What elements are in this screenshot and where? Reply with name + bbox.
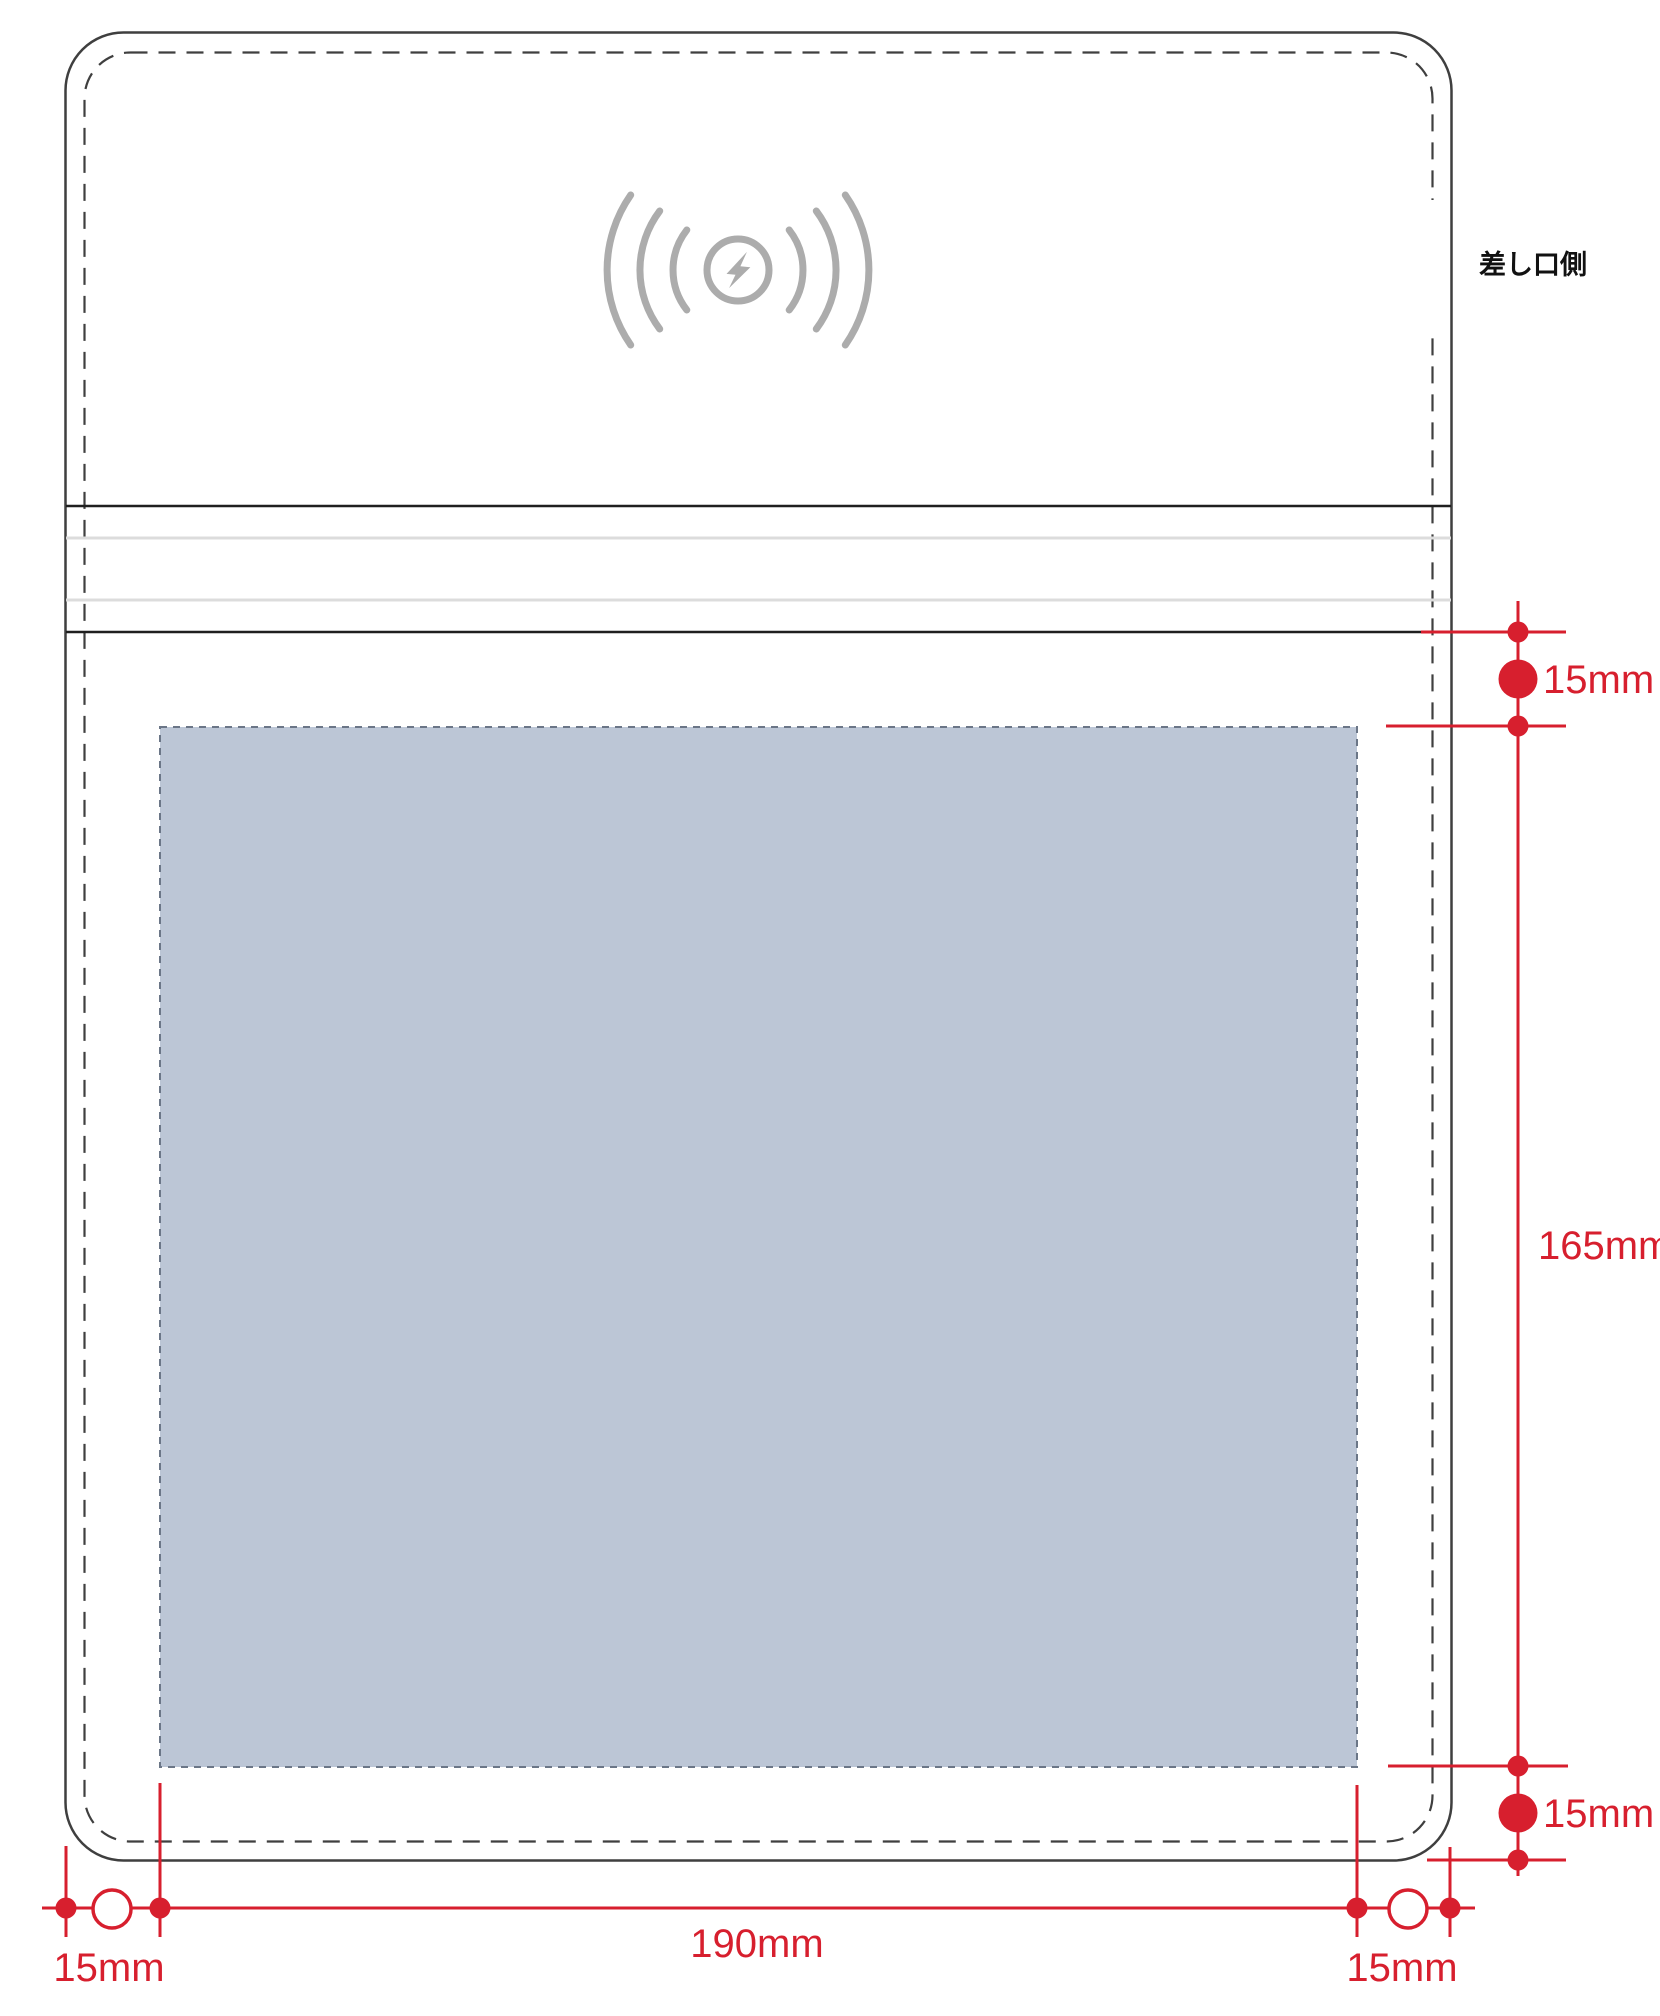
dim-big-dot-bottom-gap: [1499, 1794, 1538, 1833]
dim-ring-right: [1389, 1890, 1427, 1928]
dim-ring-left: [93, 1890, 131, 1928]
dim-dot: [1508, 622, 1529, 643]
dim-label-left-margin: 15mm: [53, 1948, 164, 1988]
insertion-side-label: 差し口側: [1479, 252, 1587, 279]
dim-label-print-width: 190mm: [690, 1924, 823, 1964]
dim-dot: [56, 1898, 77, 1919]
wireless-charging-icon: [607, 195, 869, 345]
dim-dot: [1440, 1898, 1461, 1919]
dim-dot: [1508, 716, 1529, 737]
left-wave-middle: [640, 211, 660, 329]
right-wave-outer: [845, 195, 869, 345]
dim-label-right-margin: 15mm: [1346, 1948, 1457, 1988]
print-area: [160, 727, 1357, 1767]
diagram-artwork: [0, 0, 1660, 2016]
lightning-bolt-icon: [725, 250, 752, 290]
band-seam: [66, 506, 1451, 632]
right-wave-inner: [789, 230, 803, 310]
dim-dot: [150, 1898, 171, 1919]
dim-big-dot-top-gap: [1499, 660, 1538, 699]
dim-dot: [1508, 1756, 1529, 1777]
left-wave-outer: [607, 195, 631, 345]
dim-label-bottom-gap: 15mm: [1543, 1794, 1654, 1834]
dim-label-print-height: 165mm: [1538, 1226, 1660, 1266]
dim-label-top-gap: 15mm: [1543, 660, 1654, 700]
pouch-dimension-diagram: 差し口側 15mm 165mm 15mm 15mm 190mm 15mm: [0, 0, 1660, 2016]
dim-dot: [1508, 1850, 1529, 1871]
left-wave-inner: [673, 230, 687, 310]
dim-dot: [1347, 1898, 1368, 1919]
insertion-slot-gap: [1423, 200, 1443, 328]
right-wave-middle: [816, 211, 836, 329]
